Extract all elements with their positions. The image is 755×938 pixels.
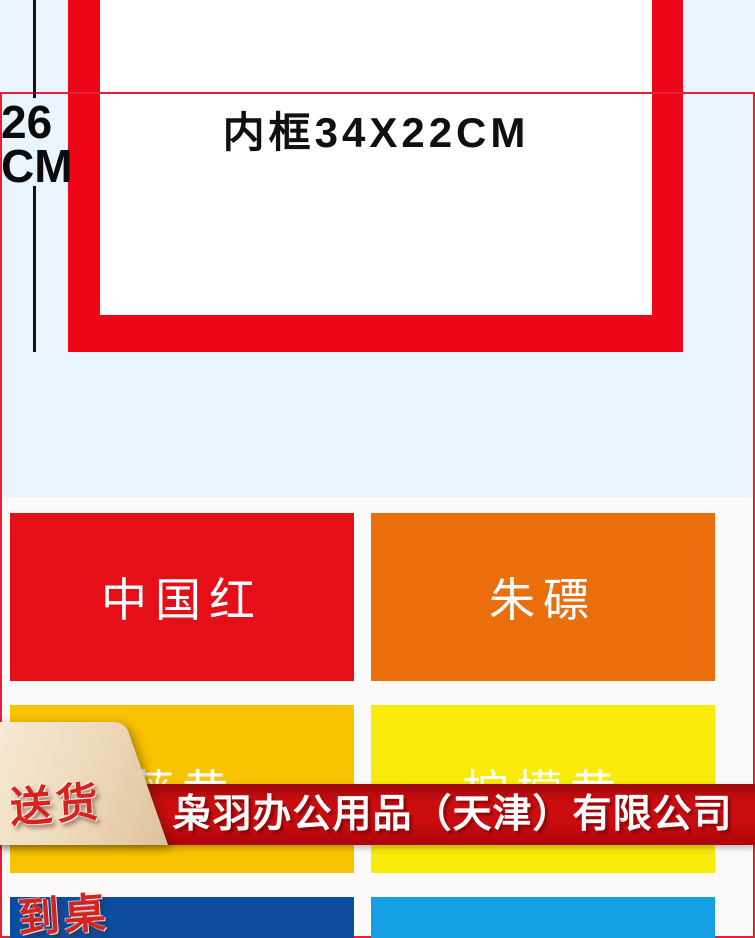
delivery-ribbon-line2: 到桌 [16,887,112,938]
color-swatch-china-red: 中国红 [10,513,354,681]
frame-height-unit: CM [1,145,73,189]
swatch-label: 朱磦 [489,564,597,630]
frame-height-value: 26 [1,101,73,145]
red-photo-frame [68,0,683,352]
color-swatch-light-blue [371,897,715,938]
color-swatch-vermilion: 朱磦 [371,513,715,681]
swatch-label: 中国红 [101,564,263,630]
frame-inner-size-label: 内框34X22CM [100,112,652,154]
delivery-ribbon-line1: 送货 [8,776,104,838]
frame-height-label: 26 CM [1,101,73,188]
measure-line-bottom-segment [33,186,36,352]
measure-line-top-segment [33,0,36,98]
product-detail-image: 内框34X22CM 26 CM 中国红 朱磦 藤黄 柠檬黄 枭羽办公用品（天津）… [0,0,755,938]
